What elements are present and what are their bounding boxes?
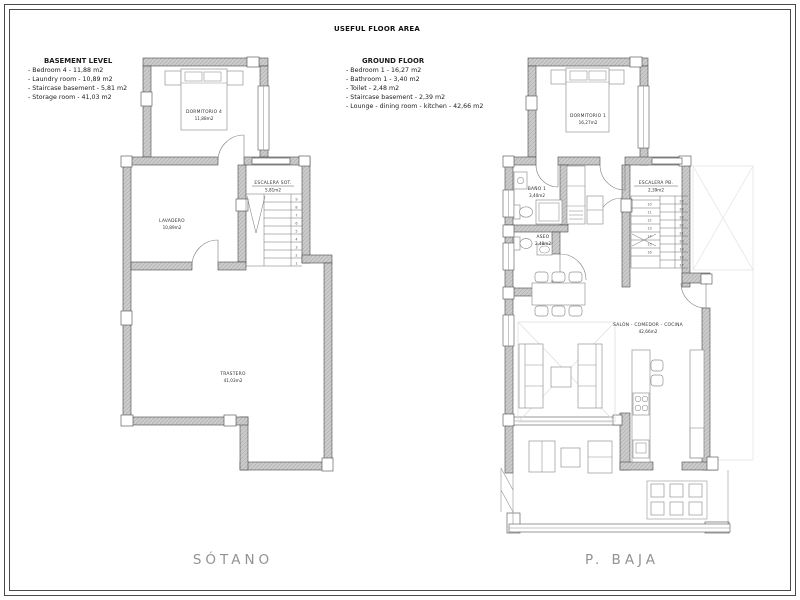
room-name-dormitorio4: DORMITORIO 4 (186, 109, 222, 115)
room-name-escalera-sot: ESCALERA SOT. (254, 180, 291, 186)
room-name-salon: SALÓN - COMEDOR - COCINA (613, 321, 683, 328)
stair-number: 5 (295, 229, 297, 233)
stair-number: 25 (679, 199, 683, 203)
living-area (518, 322, 615, 422)
room-name-aseo: ASEO (536, 234, 549, 240)
room-labels: DORMITORIO 4 11,88m2 LAVADERO 10,89m2 ES… (159, 109, 294, 383)
stair-number: 24 (679, 207, 683, 211)
stair-number: 21 (679, 231, 683, 235)
staircase: 10 11 12 13 14 15 16 25 24 23 22 21 20 1… (631, 196, 688, 268)
room-name-lavadero: LAVADERO (159, 218, 185, 224)
stair-number: 17 (679, 263, 683, 267)
room-area-aseo: 2,48m2 (535, 241, 551, 246)
stair-number: 14 (647, 234, 651, 238)
stair-number: 10 (647, 202, 651, 206)
room-name-bano: BAÑO 1 (528, 185, 546, 192)
stair-number: 11 (647, 210, 651, 214)
room-area-dormitorio4: 11,88m2 (195, 116, 214, 121)
kitchen (632, 350, 704, 462)
stair-number: 15 (647, 242, 651, 246)
stair-number: 23 (679, 215, 683, 219)
stair-number: 20 (679, 239, 683, 243)
drawing-sheet: USEFUL FLOOR AREA BASEMENT LEVEL - Bedro… (0, 0, 800, 600)
room-name-escalera-pb: ESCALERA PB. (639, 180, 673, 186)
caption-sotano: SÓTANO (133, 552, 333, 568)
stair-number: 22 (679, 223, 683, 227)
walls (505, 58, 717, 473)
stair-number: 9 (295, 197, 297, 201)
stair-numbers-left: 10 11 12 13 14 15 16 (647, 202, 651, 254)
room-name-dormitorio1: DORMITORIO 1 (570, 113, 606, 119)
stair-number: 6 (295, 221, 297, 225)
stair-number: 16 (647, 250, 651, 254)
stair-number: 19 (679, 247, 683, 251)
room-area-lavadero: 10,89m2 (163, 225, 182, 230)
stair-number: 18 (679, 255, 683, 259)
hall-closets (567, 166, 603, 224)
room-area-salon: 42,66m2 (639, 329, 658, 334)
stair-number: 12 (647, 218, 651, 222)
bathroom-fixtures (514, 172, 562, 224)
stair-numbers-right: 25 24 23 22 21 20 19 18 17 (679, 199, 683, 267)
staircase: 9 8 7 6 5 4 3 2 1 (246, 194, 302, 266)
glass-sliding-door (513, 417, 620, 425)
room-area-bano: 3,40m2 (529, 193, 545, 198)
room-area-escalera-pb: 2,39m2 (648, 188, 664, 193)
stair-numbers: 9 8 7 6 5 4 3 2 1 (295, 197, 297, 265)
stair-number: 2 (295, 253, 297, 257)
stair-number: 1 (295, 261, 297, 265)
stair-number: 7 (295, 213, 297, 217)
window (258, 86, 269, 150)
room-name-trastero: TRASTERO (219, 371, 246, 377)
room-area-dormitorio1: 16,27m2 (579, 120, 598, 125)
floor-plans-drawing: 9 8 7 6 5 4 3 2 1 DORMITORIO 4 11,88m2 L… (0, 0, 800, 600)
sotano-plan: 9 8 7 6 5 4 3 2 1 DORMITORIO 4 11,88m2 L… (121, 57, 333, 471)
room-area-trastero: 41,03m2 (224, 378, 243, 383)
room-area-escalera-sot: 5,81m2 (265, 188, 281, 193)
dining-set (532, 272, 585, 316)
stair-number: 13 (647, 226, 651, 230)
stair-number: 4 (295, 237, 297, 241)
stair-number: 8 (295, 205, 297, 209)
caption-pbaja: P. BAJA (522, 552, 722, 568)
stair-number: 3 (295, 245, 297, 249)
pbaja-plan: 10 11 12 13 14 15 16 25 24 23 22 21 20 1… (501, 57, 753, 533)
walls (123, 58, 332, 470)
